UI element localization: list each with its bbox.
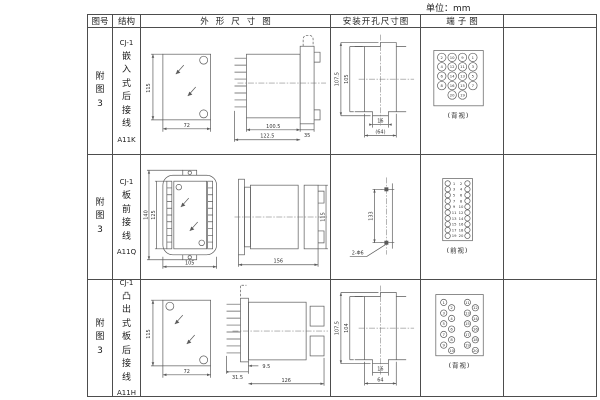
dim-inst-outer: 107.5 [334,72,340,86]
svg-text:14: 14 [459,217,464,221]
svg-text:14: 14 [450,75,455,79]
dim-flange-depth: 35 [304,133,310,139]
terminal-cell-a11h: 1234567891011121314151617181920 (背视) [421,280,504,396]
structure-name: 板前接线 [121,190,132,244]
svg-text:9: 9 [443,343,446,347]
header-empty [504,15,596,28]
svg-text:3: 3 [443,311,446,315]
dim-pin-depth: 31.5 [232,375,243,381]
fig-no-label: 附图3 [95,197,106,238]
svg-text:18: 18 [459,228,464,232]
svg-text:4: 4 [441,65,444,69]
svg-text:3: 3 [472,65,475,69]
dim-side-length: 156 [274,259,283,265]
install-diagram-a11k: 107.5 105 16 (64) [331,28,420,154]
svg-text:20: 20 [473,349,478,353]
svg-text:15: 15 [460,84,465,88]
dim-body-length: 126 [281,378,290,384]
fig-no-cell-a11q: 附图3 [88,155,113,280]
svg-text:8: 8 [450,338,453,342]
svg-text:13: 13 [460,75,465,79]
svg-text:20: 20 [450,93,455,97]
dim-inst-span: (64) [375,130,385,136]
header-terminal-diagram: 端子图 [421,15,504,28]
svg-text:12: 12 [473,306,478,310]
svg-text:7: 7 [472,84,475,88]
terminal-view-label: (背视) [449,361,471,370]
terminal-diagram-a11k: 210914121136141358161572019 (背视) [421,28,503,154]
header-fig-no: 图号 [88,15,113,28]
svg-text:1: 1 [472,56,475,60]
svg-text:10: 10 [450,56,455,60]
outline-cell-a11h: 115 72 31.5 9.5 126 [141,280,331,396]
relay-code: CJ-1 [120,280,134,287]
dim-inst-notch: 16 [377,119,383,125]
outline-diagram-a11q: 140 125 105 156 115 [141,155,330,279]
svg-text:15: 15 [452,223,457,227]
svg-text:11: 11 [465,301,470,305]
outline-diagram-a11k: 115 72 100.5 35 122.5 [141,28,330,154]
relay-code: CJ-1 [120,178,134,186]
header-structure: 结构 [113,15,141,28]
dim-side-height: 115 [321,212,327,221]
structure-cell-a11q: CJ-1 板前接线 A11Q [113,155,141,280]
outline-cell-a11k: 115 72 100.5 35 122.5 [141,28,331,155]
svg-text:1: 1 [443,301,446,305]
svg-text:2: 2 [450,306,453,310]
svg-text:2: 2 [441,56,444,60]
terminal-diagram-a11h: 1234567891011121314151617181920 (背视) [421,280,503,396]
terminal-view-label: (背视) [448,111,470,120]
dim-front-height: 115 [146,329,152,338]
dim-inst-outer: 107.5 [334,321,340,335]
relay-code: CJ-1 [120,39,134,47]
dim-total-length: 122.5 [260,134,274,140]
svg-text:4: 4 [460,188,463,192]
dim-front-inner: 125 [151,210,157,219]
install-cell-a11k: 107.5 105 16 (64) [331,28,421,155]
terminal-cell-a11k: 210914121136141358161572019 (背视) [421,28,504,155]
svg-text:7: 7 [453,199,456,203]
svg-text:11: 11 [452,211,457,215]
install-diagram-a11h: 107.5 104 16 64 [331,280,420,396]
svg-text:9: 9 [461,56,464,60]
terminal-cell-a11q: 1234567891011121314151617181920 (前视) [421,155,504,280]
svg-text:19: 19 [452,234,457,238]
install-cell-a11q: 133 2-Φ6 [331,155,421,280]
dim-inst-inner: 104 [344,323,350,332]
svg-text:16: 16 [459,223,464,227]
svg-text:16: 16 [450,84,455,88]
dim-inst-notch: 16 [377,367,383,373]
fig-no-label: 附图3 [95,71,106,112]
terminal-view-label: (前视) [447,246,469,255]
dim-hole-pitch: 133 [369,211,375,220]
notes-cell-empty [504,155,596,280]
structure-cell-a11k: CJ-1 嵌入式后接线 A11K [113,28,141,155]
svg-text:12: 12 [450,65,455,69]
structure-cell-a11h: CJ-1 凸出式板后接线 A11H [113,280,141,396]
fig-no-cell-a11h: 附图3 [88,280,113,396]
svg-text:10: 10 [449,349,454,353]
dim-front-height: 140 [143,210,149,219]
notes-cell-empty [504,280,596,396]
terminal-diagram-a11q: 1234567891011121314151617181920 (前视) [421,155,503,279]
dim-hole-note: 2-Φ6 [352,251,364,257]
dim-step: 9.5 [262,364,270,370]
dim-front-width: 72 [184,123,190,129]
model-code: A11K [117,136,135,144]
fig-no-label: 附图3 [95,318,106,359]
dim-body-length: 100.5 [266,124,280,130]
svg-text:20: 20 [459,234,464,238]
dim-inst-span: 64 [377,378,383,384]
dim-front-width: 105 [185,261,194,267]
install-diagram-a11q: 133 2-Φ6 [331,155,420,279]
svg-text:17: 17 [465,333,470,337]
svg-text:5: 5 [443,322,446,326]
dim-front-width: 72 [184,369,190,375]
svg-text:1: 1 [453,182,456,186]
model-code: A11H [117,389,136,396]
install-cell-a11h: 107.5 104 16 64 [331,280,421,396]
svg-text:8: 8 [460,199,463,203]
dim-front-height: 115 [146,83,152,92]
svg-text:8: 8 [441,84,444,88]
unit-label: 单位：mm [426,1,471,14]
header-install-dims: 安装开孔尺寸图 [331,15,421,28]
spec-table: 图号 结构 外形尺寸图 安装开孔尺寸图 端子图 附图3 CJ-1 嵌入式后接线 … [87,14,597,397]
svg-text:18: 18 [473,338,478,342]
svg-text:14: 14 [473,317,478,321]
svg-text:15: 15 [465,322,470,326]
header-outline-dims: 外形尺寸图 [141,15,331,28]
svg-text:10: 10 [459,205,464,209]
terminal-pins-a11h: 1234567891011121314151617181920 [441,299,479,353]
svg-text:3: 3 [453,188,456,192]
svg-text:4: 4 [450,317,453,321]
svg-text:17: 17 [452,228,457,232]
svg-text:7: 7 [443,333,446,337]
outline-cell-a11q: 140 125 105 156 115 [141,155,331,280]
structure-name: 嵌入式后接线 [121,51,132,132]
structure-name: 凸出式板后接线 [121,291,132,386]
terminal-pins-a11k: 210914121136141358161572019 [437,53,477,99]
terminal-pins-a11q: 1234567891011121314151617181920 [445,181,470,239]
svg-text:5: 5 [453,193,456,197]
notes-cell-empty [504,28,596,155]
svg-text:19: 19 [460,93,465,97]
svg-text:6: 6 [450,327,453,331]
svg-text:5: 5 [472,75,475,79]
svg-text:11: 11 [460,65,465,69]
svg-text:2: 2 [460,182,463,186]
svg-text:13: 13 [465,311,470,315]
svg-text:6: 6 [441,75,444,79]
dim-inst-inner: 105 [344,74,350,83]
svg-text:6: 6 [460,193,463,197]
outline-diagram-a11h: 115 72 31.5 9.5 126 [141,280,330,396]
svg-text:13: 13 [452,217,457,221]
model-code: A11Q [117,248,136,256]
fig-no-cell-a11k: 附图3 [88,28,113,155]
svg-text:12: 12 [459,211,464,215]
svg-text:16: 16 [473,327,478,331]
svg-text:19: 19 [465,343,470,347]
svg-text:9: 9 [453,205,456,209]
